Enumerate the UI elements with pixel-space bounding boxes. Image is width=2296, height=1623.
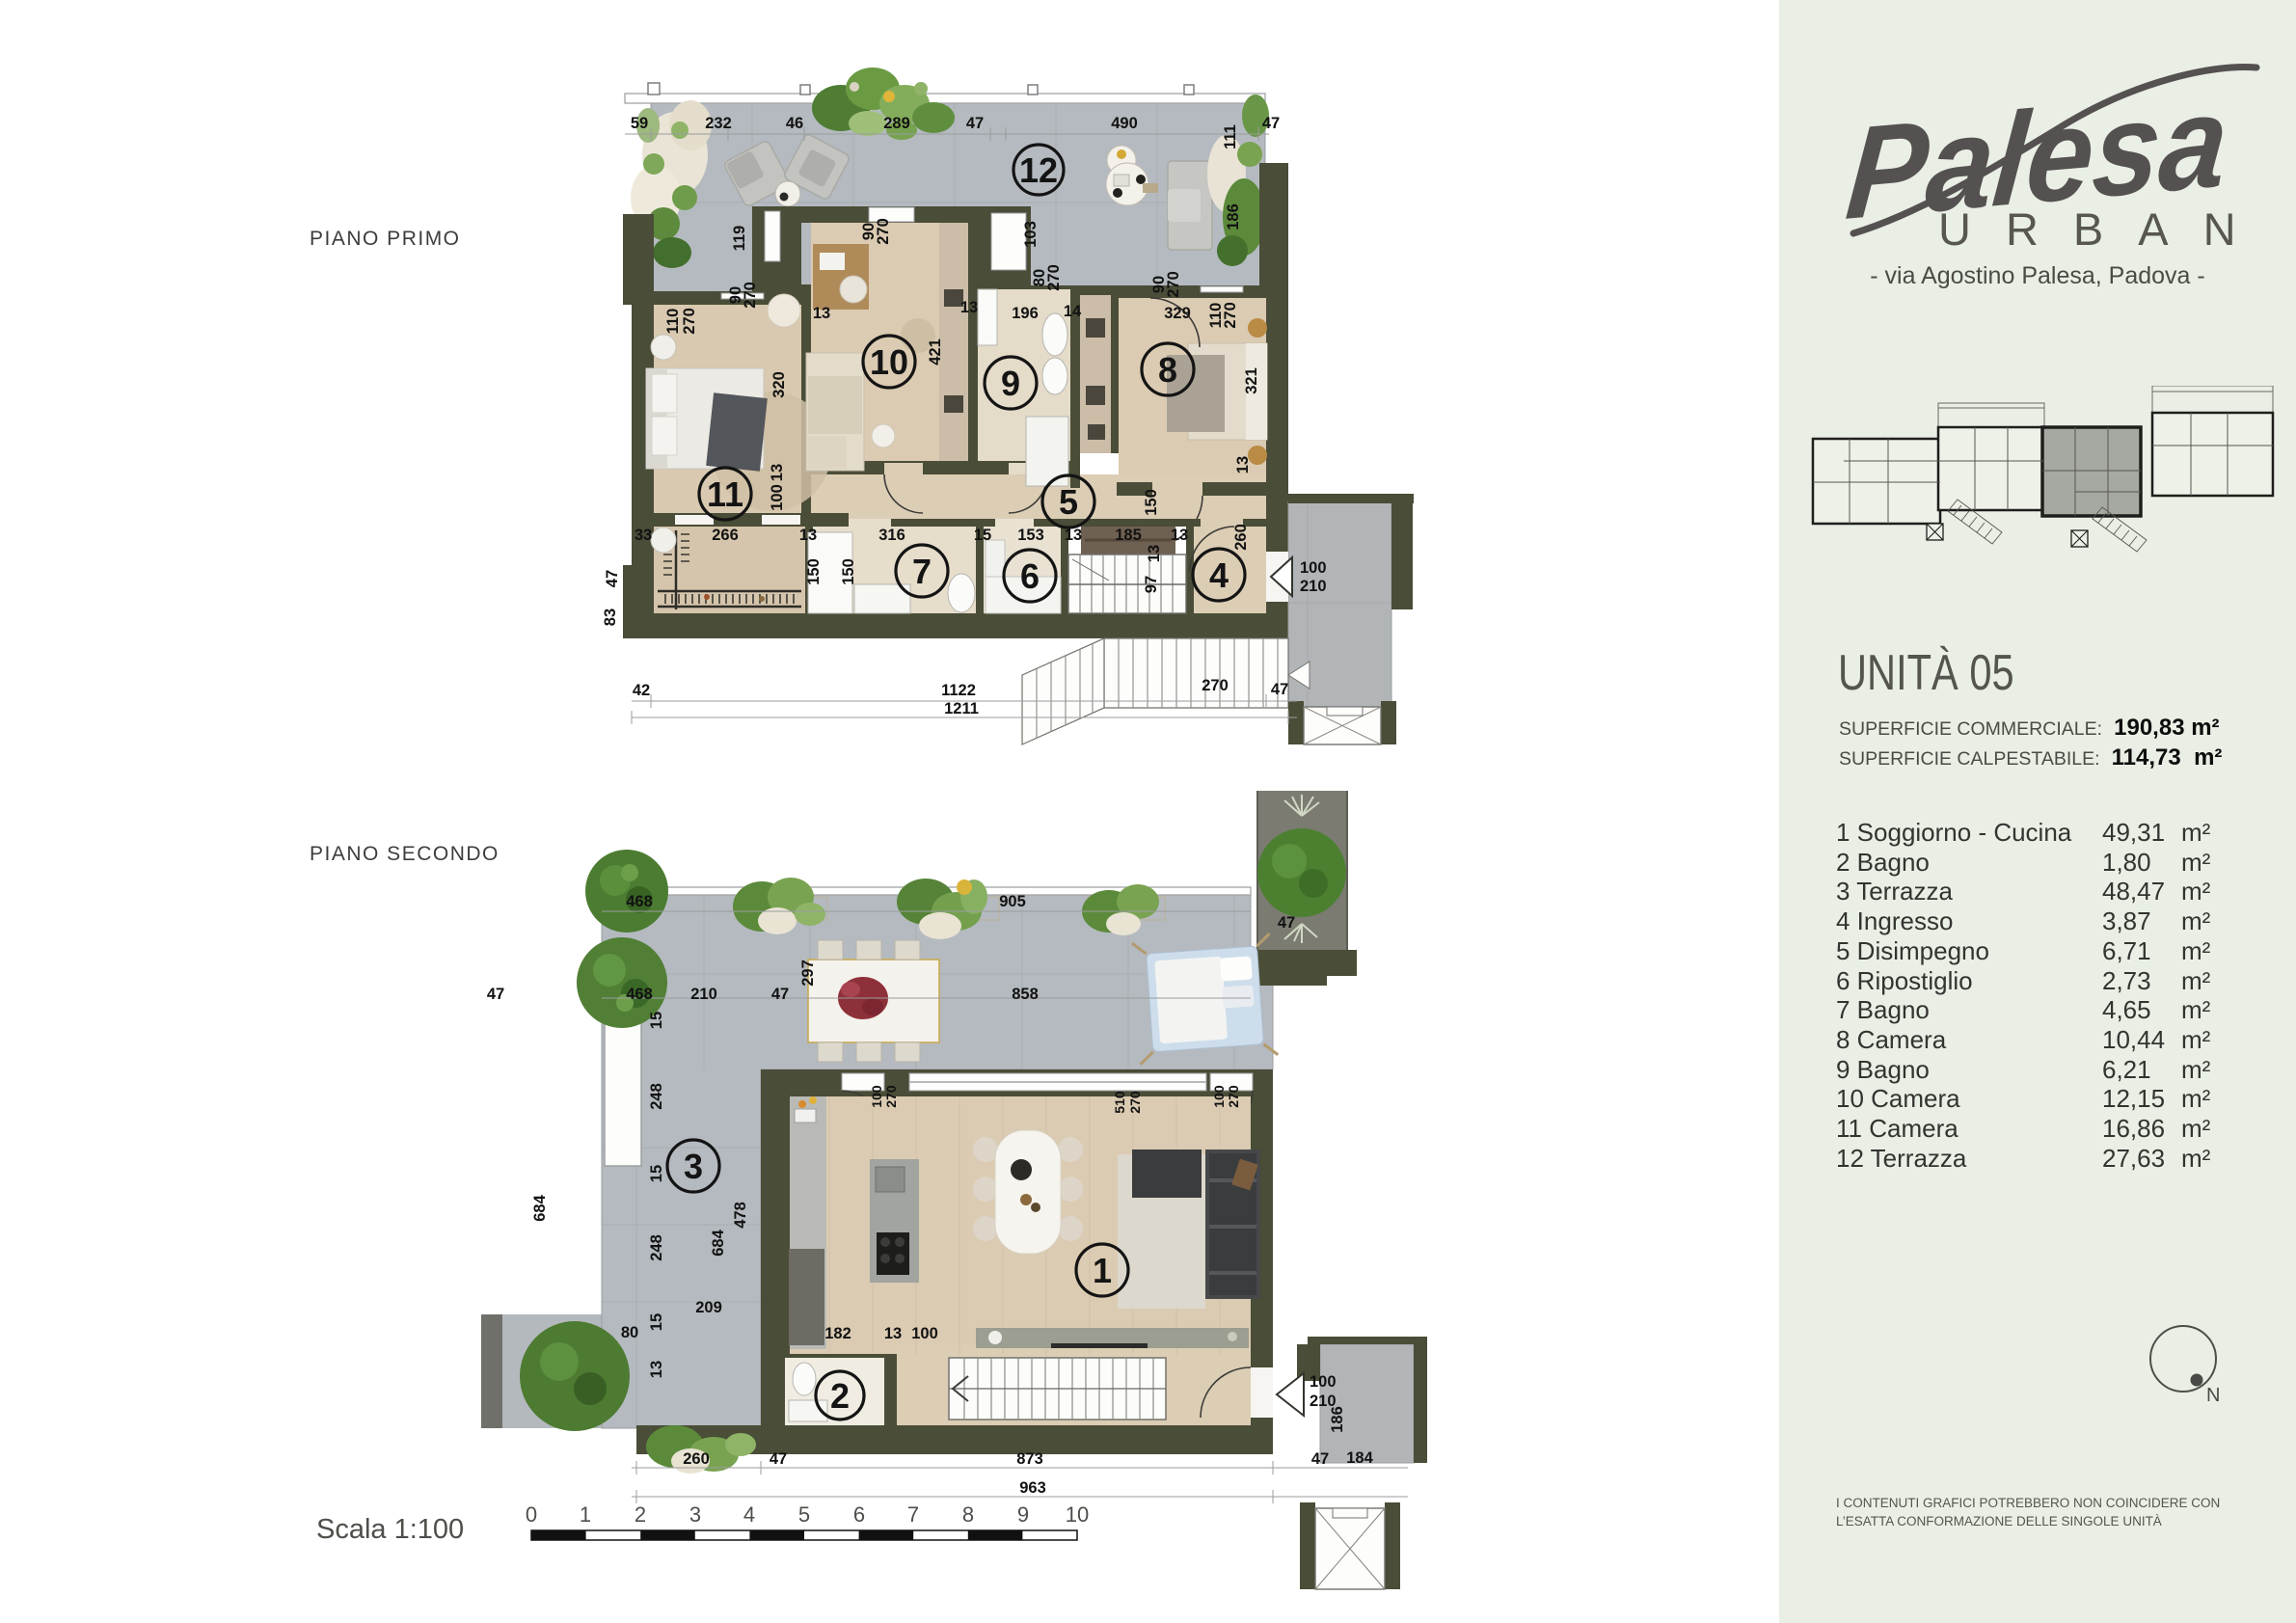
svg-text:289: 289 [883, 115, 910, 132]
svg-text:111: 111 [1222, 124, 1239, 149]
svg-text:905: 905 [999, 893, 1026, 910]
svg-text:186: 186 [1329, 1406, 1346, 1433]
svg-text:119: 119 [731, 226, 748, 252]
svg-text:13: 13 [884, 1325, 902, 1342]
svg-text:468: 468 [626, 986, 653, 1003]
svg-text:260: 260 [1232, 524, 1250, 551]
svg-text:14: 14 [1064, 303, 1082, 320]
svg-text:684: 684 [531, 1194, 549, 1221]
svg-text:42: 42 [633, 682, 650, 699]
svg-text:47: 47 [604, 570, 621, 587]
svg-text:100: 100 [911, 1325, 938, 1342]
svg-text:963: 963 [1019, 1479, 1046, 1497]
svg-text:7: 7 [912, 552, 932, 591]
svg-text:316: 316 [878, 527, 905, 544]
svg-text:15: 15 [974, 527, 991, 544]
svg-text:103: 103 [1022, 221, 1040, 248]
svg-text:270: 270 [1226, 1085, 1241, 1108]
svg-text:320: 320 [770, 371, 788, 398]
svg-text:270: 270 [1127, 1091, 1143, 1114]
svg-text:47: 47 [771, 986, 789, 1003]
svg-text:5: 5 [1059, 482, 1078, 522]
svg-text:47: 47 [770, 1450, 787, 1468]
svg-text:209: 209 [695, 1299, 722, 1316]
svg-text:47: 47 [966, 115, 984, 132]
svg-text:13: 13 [799, 527, 817, 544]
svg-text:270: 270 [681, 308, 698, 335]
svg-text:13: 13 [648, 1361, 665, 1378]
svg-text:248: 248 [648, 1083, 665, 1110]
svg-text:150: 150 [805, 558, 823, 585]
svg-text:13: 13 [1171, 527, 1188, 544]
svg-text:1211: 1211 [944, 700, 979, 717]
svg-text:490: 490 [1111, 115, 1138, 132]
svg-text:47: 47 [1278, 914, 1295, 932]
svg-text:186: 186 [1225, 203, 1242, 230]
svg-text:10: 10 [870, 342, 908, 382]
svg-text:13: 13 [1234, 456, 1252, 473]
svg-text:270: 270 [875, 218, 892, 245]
svg-text:80: 80 [621, 1324, 638, 1341]
svg-text:858: 858 [1012, 986, 1039, 1003]
svg-text:46: 46 [786, 115, 803, 132]
svg-text:13: 13 [813, 305, 830, 322]
svg-text:329: 329 [1164, 305, 1191, 322]
svg-text:N: N [2206, 1385, 2220, 1406]
svg-text:873: 873 [1016, 1450, 1043, 1468]
svg-text:47: 47 [1262, 115, 1280, 132]
svg-text:196: 196 [1012, 305, 1039, 322]
svg-text:270: 270 [742, 282, 759, 309]
svg-text:150: 150 [840, 558, 857, 585]
svg-text:6: 6 [1020, 556, 1040, 596]
svg-text:110: 110 [664, 309, 682, 335]
svg-text:15: 15 [648, 1012, 665, 1029]
svg-text:184: 184 [1346, 1449, 1373, 1467]
svg-text:3: 3 [684, 1147, 703, 1186]
svg-text:270: 270 [1222, 302, 1239, 329]
svg-text:97: 97 [1143, 576, 1160, 593]
svg-text:421: 421 [927, 338, 944, 365]
svg-text:8: 8 [1158, 350, 1177, 390]
svg-text:100: 100 [1300, 559, 1327, 577]
svg-text:47: 47 [1271, 681, 1288, 698]
svg-text:100: 100 [869, 1085, 884, 1108]
svg-text:468: 468 [626, 893, 653, 910]
svg-text:270: 270 [883, 1085, 899, 1108]
svg-text:47: 47 [1311, 1450, 1329, 1468]
svg-text:15: 15 [648, 1313, 665, 1331]
svg-text:232: 232 [705, 115, 732, 132]
svg-text:1: 1 [1093, 1251, 1112, 1290]
svg-text:33: 33 [635, 527, 652, 544]
svg-text:270: 270 [1045, 264, 1063, 291]
svg-text:13: 13 [960, 299, 978, 316]
svg-text:185: 185 [1115, 527, 1142, 544]
svg-text:83: 83 [602, 609, 619, 626]
svg-text:210: 210 [1300, 578, 1327, 595]
svg-text:248: 248 [648, 1234, 665, 1261]
svg-text:182: 182 [824, 1325, 851, 1342]
svg-text:266: 266 [712, 527, 739, 544]
svg-text:13: 13 [769, 464, 786, 481]
svg-text:4: 4 [1209, 555, 1229, 595]
svg-text:15: 15 [648, 1165, 665, 1182]
svg-text:9: 9 [1001, 364, 1020, 403]
svg-text:2: 2 [830, 1376, 850, 1416]
svg-text:297: 297 [799, 960, 817, 987]
svg-text:153: 153 [1017, 527, 1044, 544]
svg-text:13: 13 [1065, 527, 1082, 544]
svg-text:12: 12 [1019, 150, 1058, 190]
svg-text:100: 100 [1211, 1085, 1227, 1108]
svg-text:59: 59 [631, 115, 648, 132]
svg-text:510: 510 [1112, 1091, 1127, 1114]
svg-text:47: 47 [487, 986, 504, 1003]
svg-text:1122: 1122 [941, 682, 976, 699]
svg-text:270: 270 [1202, 677, 1229, 694]
svg-text:100: 100 [1310, 1373, 1337, 1391]
svg-text:13: 13 [1146, 545, 1163, 562]
svg-text:100: 100 [769, 484, 786, 511]
svg-text:270: 270 [1165, 271, 1182, 298]
svg-text:321: 321 [1243, 367, 1260, 394]
svg-text:260: 260 [683, 1450, 710, 1468]
svg-text:11: 11 [707, 474, 743, 514]
svg-text:150: 150 [1143, 489, 1160, 516]
svg-text:684: 684 [710, 1229, 727, 1256]
svg-text:478: 478 [732, 1202, 749, 1229]
svg-text:210: 210 [690, 986, 717, 1003]
